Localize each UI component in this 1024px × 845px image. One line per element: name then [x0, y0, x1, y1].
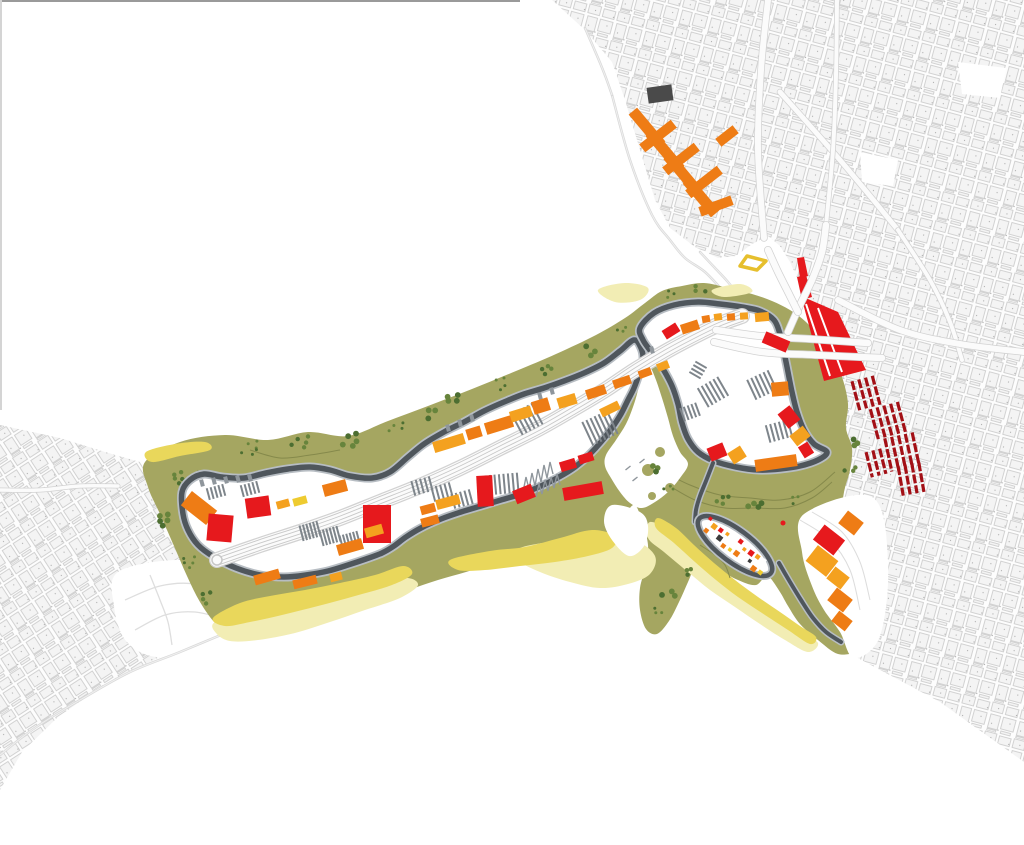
tree [592, 349, 598, 355]
tree [689, 567, 693, 571]
tree [296, 437, 300, 441]
tree [432, 408, 438, 414]
tree [193, 555, 196, 558]
tree [426, 407, 432, 413]
tree [685, 573, 689, 577]
tree [173, 476, 177, 480]
tree [797, 495, 800, 498]
masterplan-map [0, 0, 1024, 845]
marina-islet [655, 447, 665, 457]
building-amber [755, 312, 770, 322]
tree [622, 330, 625, 333]
tree [251, 453, 254, 456]
tree [191, 562, 194, 565]
tree [662, 487, 665, 490]
tree [353, 431, 359, 437]
round-islet-marker [781, 521, 786, 526]
building-red [476, 475, 494, 507]
tree [666, 296, 669, 299]
tree [255, 440, 258, 443]
tree [165, 512, 171, 518]
tree [165, 517, 171, 523]
tree [842, 468, 846, 472]
tree [673, 292, 676, 295]
tree [745, 503, 751, 509]
tree [792, 502, 795, 505]
tree [208, 590, 212, 594]
tree [157, 513, 163, 519]
tree [201, 597, 205, 601]
tree [302, 445, 306, 449]
tree [543, 372, 547, 376]
city-park-white [958, 62, 1006, 98]
building-amber [740, 312, 748, 319]
tree [503, 377, 506, 380]
tree [721, 495, 725, 499]
building-red [206, 513, 233, 542]
tree [693, 284, 697, 288]
highway-terminus [212, 555, 222, 565]
marina-islet [648, 492, 656, 500]
tree [183, 561, 186, 564]
image-border-left [0, 0, 2, 410]
tree [182, 557, 185, 560]
tree [693, 289, 697, 293]
tree [721, 502, 725, 506]
tree [759, 500, 765, 506]
tree [354, 438, 360, 444]
tree [304, 440, 308, 444]
tree [340, 442, 346, 448]
tree [703, 289, 707, 293]
tree [160, 523, 166, 529]
tree [401, 421, 404, 424]
tree [672, 488, 675, 491]
image-border-top [0, 0, 520, 2]
tree [425, 416, 431, 422]
tree [240, 451, 243, 454]
tree [401, 427, 404, 430]
tree [204, 601, 208, 605]
tree [392, 424, 395, 427]
tree [306, 434, 310, 438]
tree [503, 384, 506, 387]
building-orange [701, 315, 710, 323]
tree [791, 496, 794, 499]
building-orange [727, 313, 736, 321]
tree [650, 463, 656, 469]
tree [726, 495, 730, 499]
tree [583, 343, 589, 349]
building-amber [714, 313, 723, 321]
tree [669, 485, 672, 488]
map-canvas [0, 0, 1024, 845]
tree [454, 398, 460, 404]
building-orange [771, 381, 789, 396]
building-red [245, 495, 272, 518]
tree [188, 566, 191, 569]
tree [685, 568, 689, 572]
tree [616, 329, 619, 332]
tree [345, 433, 351, 439]
tree [653, 607, 656, 610]
tree [660, 611, 663, 614]
tree [854, 440, 860, 446]
tree [499, 388, 502, 391]
tree [540, 367, 544, 371]
tree [455, 392, 461, 398]
tree [289, 443, 293, 447]
tree [624, 326, 627, 329]
tree [495, 379, 498, 382]
tree [667, 290, 670, 293]
tree [247, 442, 250, 445]
tree [446, 398, 452, 404]
tree [201, 592, 205, 596]
tree [172, 473, 176, 477]
tree [388, 429, 391, 432]
tree [853, 465, 857, 469]
tree [654, 611, 657, 614]
tree [653, 469, 659, 475]
tree [179, 470, 183, 474]
tree [669, 589, 675, 595]
tree [715, 499, 719, 503]
tree [659, 592, 665, 598]
tree [255, 448, 258, 451]
tree [546, 364, 550, 368]
tree [350, 443, 356, 449]
